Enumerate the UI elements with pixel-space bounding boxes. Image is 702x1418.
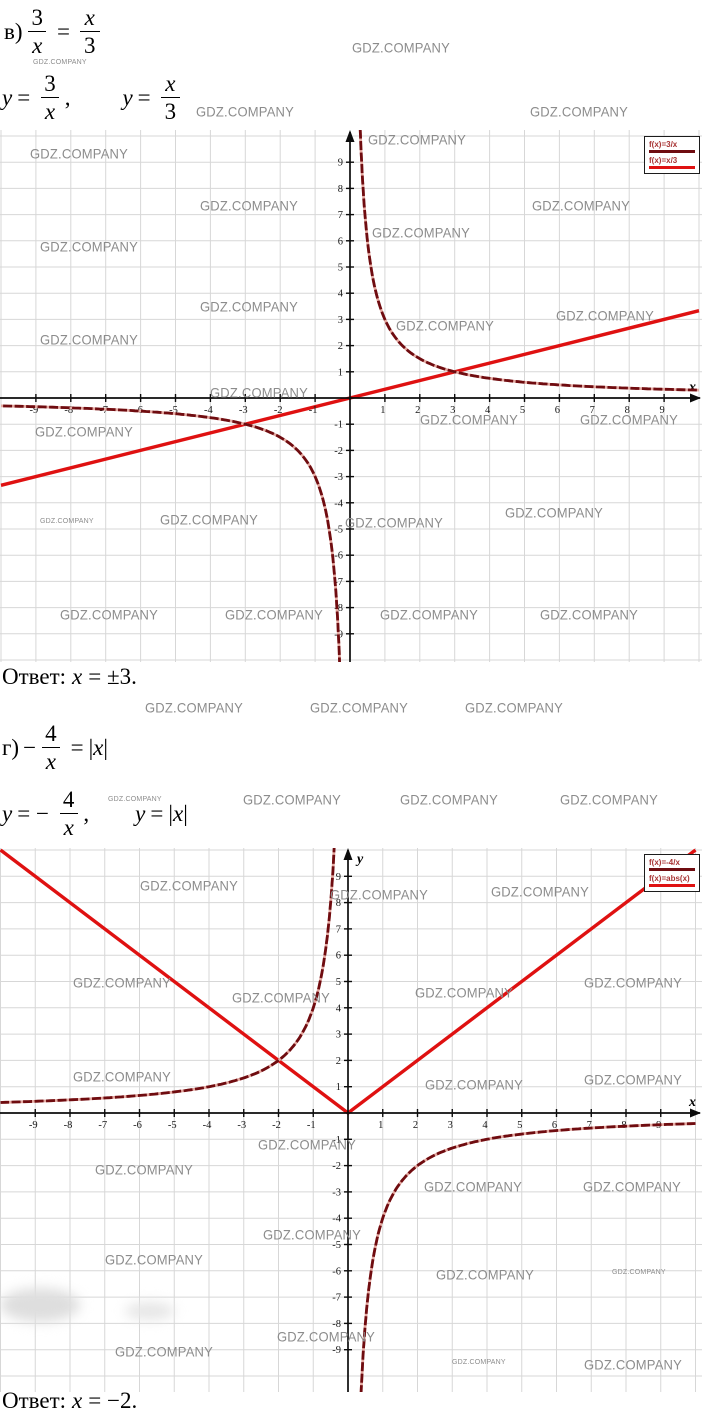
watermark: GDZ.COMPANY	[584, 1071, 682, 1087]
legend-label: f(x)=abs(x)	[649, 874, 695, 883]
legend-entry: f(x)=3/x	[649, 140, 695, 153]
watermark: GDZ.COMPANY	[530, 103, 628, 119]
y-tick-label: -6	[334, 551, 343, 562]
x-tick-label: 1	[378, 1120, 383, 1131]
watermark: GDZ.COMPANY	[115, 1343, 213, 1359]
watermark: GDZ.COMPANY	[108, 796, 162, 804]
watermark: GDZ.COMPANY	[452, 1359, 506, 1367]
x-tick-label: -4	[203, 1120, 212, 1131]
fraction: 4 x	[59, 788, 79, 840]
answer-g: Ответ: x = −2.	[2, 1388, 137, 1414]
y-tick-label: 7	[336, 924, 341, 935]
y-tick-label: -9	[332, 1345, 341, 1356]
watermark: GDZ.COMPANY	[33, 59, 87, 67]
watermark: GDZ.COMPANY	[40, 518, 94, 526]
y-tick-label: 1	[338, 367, 343, 378]
watermark: GDZ.COMPANY	[30, 145, 128, 161]
legend-label: f(x)=-4/x	[649, 858, 695, 867]
watermark: GDZ.COMPANY	[200, 298, 298, 314]
scan-smudge	[0, 1288, 80, 1322]
fraction: 3 x	[28, 6, 48, 58]
chart-legend: f(x)=3/xf(x)=x/3	[644, 136, 700, 174]
y-tick-label: -4	[334, 498, 343, 509]
x-tick-label: -1	[309, 405, 318, 416]
watermark: GDZ.COMPANY	[580, 411, 678, 427]
y-tick-label: 2	[336, 1056, 341, 1067]
y-tick-label: 3	[336, 1030, 341, 1041]
watermark: GDZ.COMPANY	[345, 514, 443, 530]
watermark: GDZ.COMPANY	[505, 504, 603, 520]
fraction: 4 x	[41, 722, 61, 774]
watermark: GDZ.COMPANY	[584, 1356, 682, 1372]
scan-smudge	[125, 1302, 175, 1320]
legend-entry: f(x)=-4/x	[649, 858, 695, 871]
y-tick-label: 6	[338, 236, 343, 247]
watermark: GDZ.COMPANY	[465, 699, 563, 715]
y-tick-label: 4	[338, 289, 344, 300]
legend-entry: f(x)=x/3	[649, 156, 695, 169]
y-tick-label: 2	[338, 341, 343, 352]
legend-label: f(x)=3/x	[649, 140, 695, 149]
x-tick-label: -9	[29, 1120, 38, 1131]
y-tick-label: -2	[332, 1161, 341, 1172]
watermark: GDZ.COMPANY	[424, 1178, 522, 1194]
watermark: GDZ.COMPANY	[352, 39, 450, 55]
chart-canvas: -9-8-7-6-5-4-3-2-1123456789-9-8-7-6-5-4-…	[0, 848, 702, 1392]
y-tick-label: -4	[332, 1214, 341, 1225]
x-tick-label: -7	[98, 1120, 107, 1131]
watermark: GDZ.COMPANY	[612, 1269, 666, 1277]
watermark: GDZ.COMPANY	[415, 984, 513, 1000]
x-tick-label: -3	[237, 1120, 246, 1131]
watermark: GDZ.COMPANY	[60, 606, 158, 622]
watermark: GDZ.COMPANY	[436, 1266, 534, 1282]
watermark: GDZ.COMPANY	[105, 1251, 203, 1267]
x-tick-label: -2	[272, 1120, 281, 1131]
legend-label: f(x)=x/3	[649, 156, 695, 165]
watermark: GDZ.COMPANY	[40, 238, 138, 254]
x-tick-label: -1	[307, 1120, 316, 1131]
watermark: GDZ.COMPANY	[95, 1161, 193, 1177]
y-tick-label: 9	[338, 158, 343, 169]
equation-g: г) − 4 x = |x|	[2, 722, 108, 774]
watermark: GDZ.COMPANY	[330, 886, 428, 902]
x-tick-label: -3	[239, 405, 248, 416]
y-tick-label: -3	[334, 472, 343, 483]
watermark: GDZ.COMPANY	[145, 699, 243, 715]
x-tick-label: 2	[413, 1120, 418, 1131]
watermark: GDZ.COMPANY	[540, 606, 638, 622]
watermark: GDZ.COMPANY	[35, 423, 133, 439]
y-tick-label: 7	[338, 210, 343, 221]
watermark: GDZ.COMPANY	[196, 103, 294, 119]
x-tick-label: 5	[517, 1120, 522, 1131]
x-tick-label: 4	[482, 1120, 488, 1131]
watermark: GDZ.COMPANY	[200, 197, 298, 213]
chart-legend: f(x)=-4/xf(x)=abs(x)	[644, 854, 700, 892]
watermark: GDZ.COMPANY	[372, 224, 470, 240]
watermark: GDZ.COMPANY	[277, 1328, 375, 1344]
y-tick-label: -5	[334, 525, 343, 536]
watermark: GDZ.COMPANY	[73, 1068, 171, 1084]
watermark: GDZ.COMPANY	[310, 699, 408, 715]
watermark: GDZ.COMPANY	[583, 1178, 681, 1194]
x-axis-label: x	[688, 1095, 696, 1110]
y-tick-label: -2	[334, 446, 343, 457]
x-tick-label: -6	[133, 1120, 142, 1131]
watermark: GDZ.COMPANY	[396, 317, 494, 333]
watermark: GDZ.COMPANY	[420, 411, 518, 427]
y-tick-label: -1	[334, 420, 343, 431]
watermark: GDZ.COMPANY	[263, 1226, 361, 1242]
watermark: GDZ.COMPANY	[210, 384, 308, 400]
watermark: GDZ.COMPANY	[258, 1136, 356, 1152]
solution-page: в) 3 x = x 3 y = 3 x , y = x 3 -9-8-7-6-…	[0, 0, 702, 1418]
functions-v: y = 3 x , y = x 3	[2, 72, 185, 124]
watermark: GDZ.COMPANY	[243, 791, 341, 807]
y-tick-label: 3	[338, 315, 343, 326]
watermark: GDZ.COMPANY	[73, 974, 171, 990]
problem-label: в)	[4, 19, 23, 45]
fraction: x 3	[161, 72, 181, 124]
legend-color-line	[649, 150, 695, 153]
watermark: GDZ.COMPANY	[556, 307, 654, 323]
legend-color-line	[649, 884, 695, 887]
fraction: x 3	[80, 6, 100, 58]
equation-v: в) 3 x = x 3	[4, 6, 105, 58]
x-tick-label: 5	[520, 405, 525, 416]
x-tick-label: -5	[168, 1120, 177, 1131]
problem-label: г)	[2, 735, 19, 761]
fraction: 3 x	[40, 72, 60, 124]
y-tick-label: 1	[336, 1082, 341, 1093]
y-axis-label: y	[355, 852, 364, 867]
x-tick-label: 1	[380, 405, 385, 416]
watermark: GDZ.COMPANY	[425, 1076, 523, 1092]
watermark: GDZ.COMPANY	[584, 974, 682, 990]
watermark: GDZ.COMPANY	[232, 989, 330, 1005]
watermark: GDZ.COMPANY	[40, 331, 138, 347]
legend-color-line	[649, 868, 695, 871]
y-tick-label: 5	[338, 263, 343, 274]
watermark: GDZ.COMPANY	[400, 791, 498, 807]
x-tick-label: 6	[555, 405, 560, 416]
y-tick-label: 6	[336, 951, 341, 962]
x-tick-label: -2	[274, 405, 283, 416]
y-tick-label: 5	[336, 977, 341, 988]
y-tick-label: -6	[332, 1266, 341, 1277]
watermark: GDZ.COMPANY	[368, 131, 466, 147]
y-tick-label: -7	[332, 1293, 341, 1304]
y-tick-label: 9	[336, 872, 341, 883]
y-tick-label: 8	[338, 184, 343, 195]
y-tick-label: 4	[336, 1003, 342, 1014]
watermark: GDZ.COMPANY	[532, 197, 630, 213]
watermark: GDZ.COMPANY	[560, 791, 658, 807]
watermark: GDZ.COMPANY	[225, 606, 323, 622]
legend-color-line	[649, 166, 695, 169]
x-tick-label: 3	[448, 1120, 453, 1131]
legend-entry: f(x)=abs(x)	[649, 874, 695, 887]
x-tick-label: -8	[64, 1120, 73, 1131]
x-tick-label: -4	[204, 405, 213, 416]
answer-v: Ответ: x = ±3.	[2, 664, 137, 690]
watermark: GDZ.COMPANY	[491, 883, 589, 899]
watermark: GDZ.COMPANY	[160, 511, 258, 527]
watermark: GDZ.COMPANY	[140, 877, 238, 893]
y-tick-label: -3	[332, 1187, 341, 1198]
x-axis-label: x	[688, 380, 696, 395]
watermark: GDZ.COMPANY	[380, 606, 478, 622]
chart-g: -9-8-7-6-5-4-3-2-1123456789-9-8-7-6-5-4-…	[0, 848, 702, 1392]
